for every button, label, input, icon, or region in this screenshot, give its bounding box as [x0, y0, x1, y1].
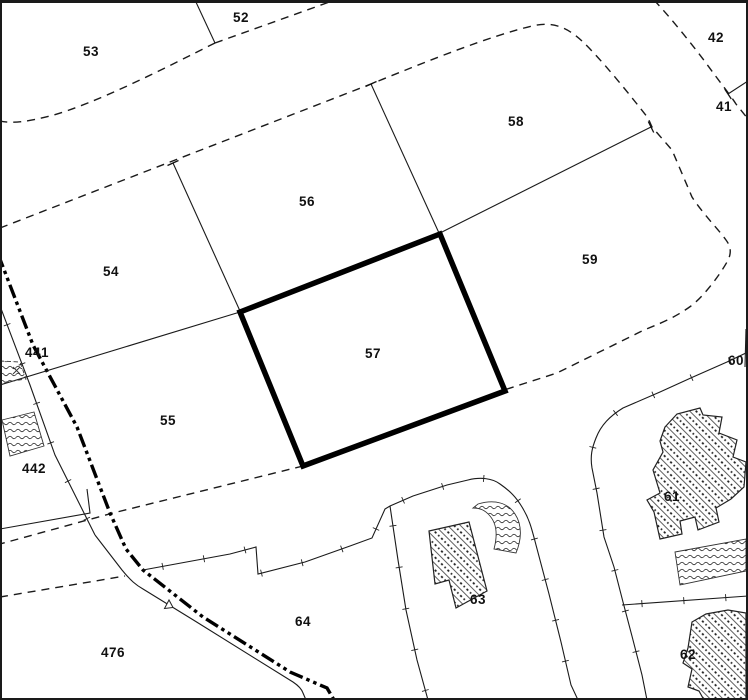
verandas	[0, 361, 746, 585]
veranda-near-61	[675, 539, 746, 585]
parcel-label-64[interactable]: 64	[295, 614, 311, 629]
survey-tick-marks	[4, 324, 732, 692]
survey-tick	[483, 475, 484, 482]
parcel-label-62[interactable]: 62	[680, 647, 696, 662]
road-edge-north-of-476	[0, 576, 125, 597]
survey-tick	[684, 597, 685, 604]
boundary-41-42	[728, 81, 748, 94]
road-edge-south-of-55	[0, 466, 303, 544]
road-edge-north-of-53	[0, 43, 215, 122]
survey-tick	[726, 594, 727, 601]
parcel-label-441[interactable]: 441	[25, 345, 49, 360]
parcel-label-42[interactable]: 42	[708, 30, 724, 45]
survey-tick	[515, 499, 521, 503]
parcel-label-52[interactable]: 52	[233, 10, 249, 25]
boundary-terminator-ticks	[168, 82, 732, 166]
boundary-52-53	[195, 0, 215, 43]
boundary-63-64	[390, 506, 428, 700]
parcel-label-53[interactable]: 53	[83, 44, 99, 59]
veranda-curved-near-63	[473, 502, 520, 553]
survey-tick	[162, 563, 163, 570]
block-54-59-road-outline	[0, 24, 730, 390]
tick-41-42-end	[725, 89, 732, 99]
cadastral-map-stage: 52 53 42 41 58 56 54 59 57 60 441 55 442…	[0, 0, 748, 700]
building-in-442	[2, 412, 44, 456]
parcel-labels: 52 53 42 41 58 56 54 59 57 60 441 55 442…	[22, 10, 744, 662]
road-edge-west-of-41-42	[654, 0, 748, 119]
boundary-54-56	[173, 163, 240, 311]
survey-tick	[642, 600, 643, 607]
survey-tick	[203, 555, 204, 562]
survey-tick	[402, 608, 409, 609]
tick-56-58-end	[366, 82, 377, 87]
parcel-label-58[interactable]: 58	[508, 114, 524, 129]
parcel-label-63[interactable]: 63	[470, 592, 486, 607]
parcel-label-60[interactable]: 60	[728, 353, 744, 368]
survey-triangle-marker	[165, 600, 174, 609]
boundary-58-59	[440, 127, 651, 233]
boundary-60-edge	[745, 329, 746, 367]
boundary-61-62	[622, 596, 748, 605]
admin-boundary-group	[0, 254, 334, 700]
parcel-label-55[interactable]: 55	[160, 413, 176, 428]
parcel-label-56[interactable]: 56	[299, 194, 315, 209]
map-canvas[interactable]: 52 53 42 41 58 56 54 59 57 60 441 55 442…	[0, 0, 748, 700]
parcel-label-59[interactable]: 59	[582, 252, 598, 267]
parcel-label-442[interactable]: 442	[22, 461, 46, 476]
boundary-56-58	[371, 84, 439, 233]
survey-tick	[600, 530, 607, 531]
parcel-label-57[interactable]: 57	[365, 346, 381, 361]
parcel-label-41[interactable]: 41	[716, 99, 732, 114]
survey-tick	[390, 525, 397, 526]
admin-dash-dot-boundary	[0, 254, 334, 700]
parcel-label-61[interactable]: 61	[664, 489, 680, 504]
building-61	[647, 408, 746, 539]
survey-tick	[396, 567, 403, 568]
parcel-label-476[interactable]: 476	[101, 645, 125, 660]
parcel-label-54[interactable]: 54	[103, 264, 119, 279]
boundary-442-south	[0, 489, 90, 529]
